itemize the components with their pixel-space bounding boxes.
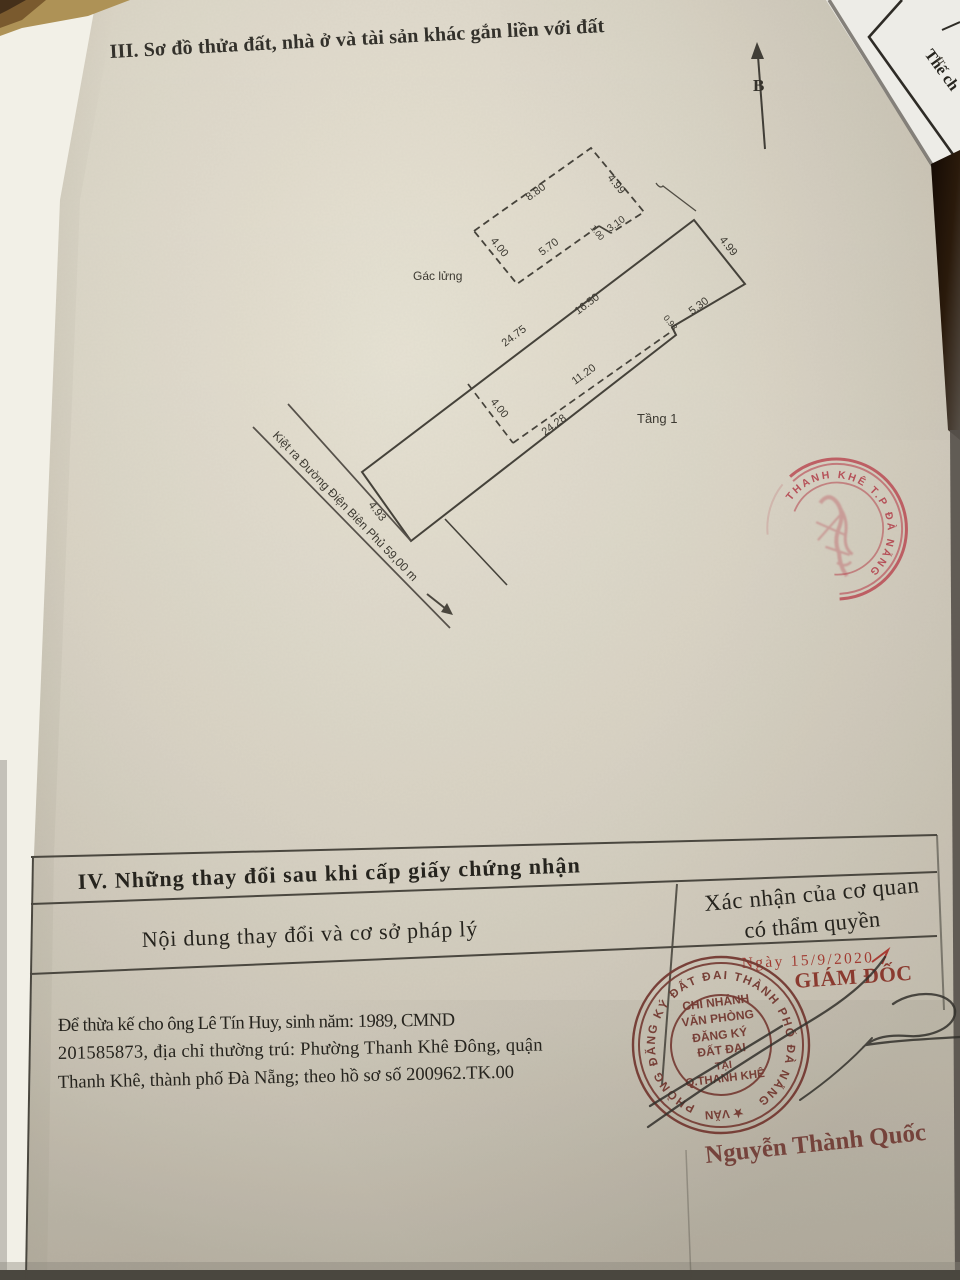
svg-text:B: B (753, 76, 764, 95)
svg-text:Tầng 1: Tầng 1 (637, 411, 677, 426)
svg-text:★ VĂN: ★ VĂN (704, 1106, 744, 1123)
svg-text:Gác lửng: Gác lửng (413, 269, 462, 283)
